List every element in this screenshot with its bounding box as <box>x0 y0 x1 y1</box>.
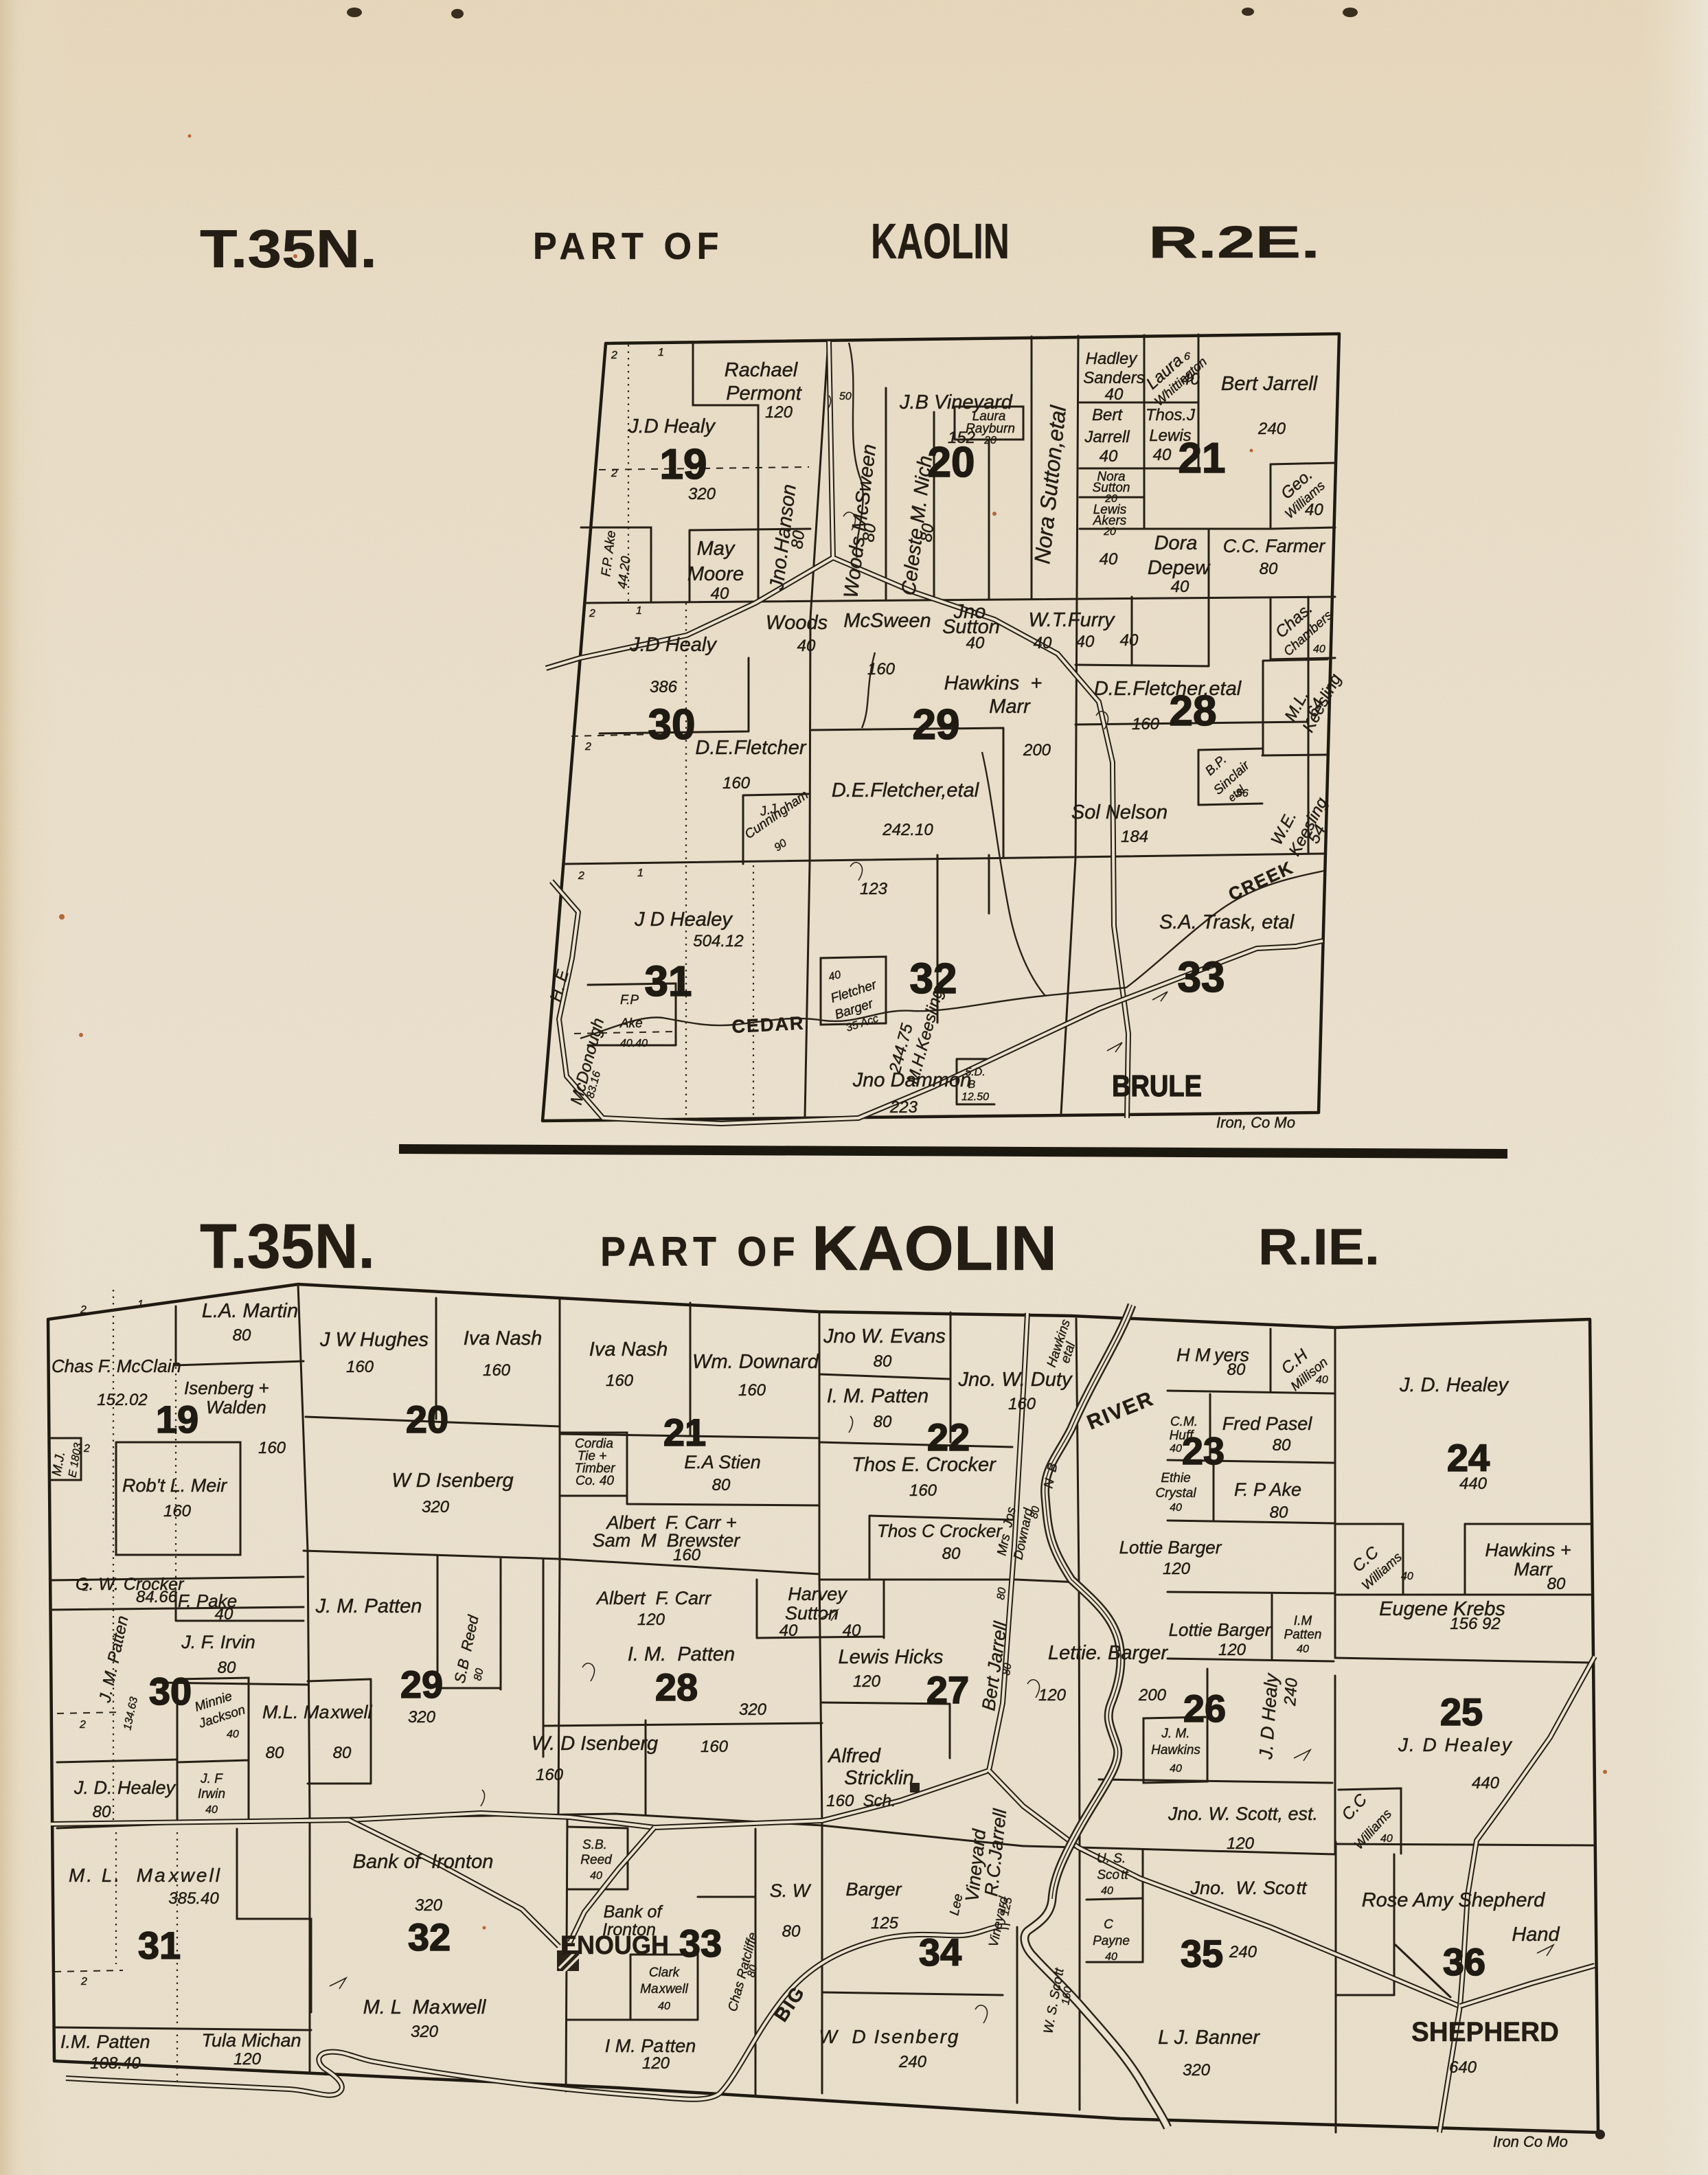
svg-text:320: 320 <box>1183 2061 1211 2080</box>
svg-text:19: 19 <box>660 441 707 488</box>
svg-text:Clark: Clark <box>649 1966 681 1980</box>
svg-text:M. L. Maxwell: M. L. Maxwell <box>69 1865 222 1886</box>
svg-text:40: 40 <box>1170 1763 1182 1775</box>
svg-text:Lewis Hicks: Lewis Hicks <box>838 1646 943 1668</box>
svg-text:40: 40 <box>1181 370 1200 389</box>
svg-text:Ake: Ake <box>619 1016 643 1031</box>
svg-text:KAOLIN: KAOLIN <box>871 214 1010 269</box>
svg-text:Barger: Barger <box>845 1879 902 1900</box>
svg-text:20: 20 <box>983 435 997 446</box>
svg-text:D.E.Fletcher,etal: D.E.Fletcher,etal <box>1094 678 1242 700</box>
svg-text:40: 40 <box>797 637 816 655</box>
svg-text:40: 40 <box>1305 501 1323 519</box>
svg-text:F. P Ake: F. P Ake <box>1234 1479 1301 1500</box>
svg-text:80: 80 <box>1028 1505 1042 1520</box>
svg-text:Patten: Patten <box>1284 1628 1322 1642</box>
svg-text:McSween: McSween <box>843 610 931 632</box>
svg-text:80: 80 <box>93 1803 111 1821</box>
svg-text:Marr: Marr <box>989 696 1031 718</box>
svg-text:320: 320 <box>411 2023 439 2041</box>
svg-text:Depew: Depew <box>1148 557 1211 579</box>
svg-text:May: May <box>697 538 736 560</box>
svg-text:S.A. Trask, etal: S.A. Trask, etal <box>1159 911 1295 933</box>
svg-text:120: 120 <box>1163 1560 1191 1578</box>
svg-text:2: 2 <box>80 1976 87 1988</box>
svg-text:Jno. W. Scott: Jno. W. Scott <box>1189 1878 1308 1898</box>
svg-text:80: 80 <box>1260 560 1278 578</box>
svg-text:20: 20 <box>1103 526 1116 538</box>
svg-text:40: 40 <box>1076 633 1095 651</box>
svg-text:160: 160 <box>1132 715 1160 733</box>
svg-text:W.T.Furry: W.T.Furry <box>1028 609 1115 631</box>
svg-text:2: 2 <box>79 1719 86 1731</box>
svg-text:27: 27 <box>926 1668 969 1711</box>
svg-text:40: 40 <box>1170 1443 1182 1455</box>
svg-text:320: 320 <box>688 485 716 503</box>
svg-text:J. D Healey: J. D Healey <box>1398 1734 1513 1755</box>
svg-text:240: 240 <box>1229 1943 1257 1961</box>
svg-text:Rob't L. Meir: Rob't L. Meir <box>122 1475 227 1496</box>
svg-text:20: 20 <box>406 1398 448 1441</box>
svg-text:S. W: S. W <box>770 1880 812 1901</box>
svg-text:120: 120 <box>853 1672 881 1691</box>
svg-text:22: 22 <box>927 1415 970 1459</box>
svg-text:W D Isenberg: W D Isenberg <box>819 2026 960 2047</box>
svg-text:J. F: J. F <box>200 1772 223 1786</box>
svg-text:21: 21 <box>663 1411 706 1454</box>
svg-text:J. M. Patten: J. M. Patten <box>315 1595 422 1617</box>
svg-text:Dora: Dora <box>1154 532 1198 554</box>
svg-text:40: 40 <box>1171 578 1189 596</box>
svg-text:Alfred: Alfred <box>827 1745 881 1767</box>
svg-text:Iva Nash: Iva Nash <box>589 1339 668 1360</box>
svg-text:D.E.Fletcher: D.E.Fletcher <box>695 737 806 759</box>
svg-text:CEDAR: CEDAR <box>731 1012 805 1037</box>
svg-text:PART OF: PART OF <box>600 1229 800 1275</box>
svg-text:320: 320 <box>415 1896 443 1915</box>
svg-text:33: 33 <box>679 1922 722 1965</box>
svg-text:S.B.: S.B. <box>582 1838 607 1852</box>
svg-text:Harvey: Harvey <box>788 1584 847 1604</box>
svg-text:Moore: Moore <box>687 563 744 585</box>
svg-text:40: 40 <box>1100 447 1118 466</box>
svg-text:24: 24 <box>1447 1436 1490 1479</box>
svg-text:240: 240 <box>1257 420 1286 438</box>
svg-text:25: 25 <box>1440 1690 1483 1733</box>
svg-text:386: 386 <box>650 678 678 696</box>
svg-text:U. S.: U. S. <box>1097 1852 1126 1866</box>
svg-text:6: 6 <box>1184 351 1190 363</box>
svg-text:32: 32 <box>408 1915 451 1959</box>
svg-text:34: 34 <box>919 1931 961 1974</box>
svg-text:L J. Banner: L J. Banner <box>1158 2027 1260 2049</box>
svg-text:I.M: I.M <box>1294 1614 1312 1628</box>
svg-text:80: 80 <box>874 1413 892 1431</box>
svg-text:40: 40 <box>590 1870 602 1882</box>
svg-text:Wm. Downard: Wm. Downard <box>692 1351 819 1373</box>
svg-text:40: 40 <box>1153 446 1172 464</box>
svg-text:Thos.J: Thos.J <box>1146 406 1196 424</box>
svg-text:Jarrell: Jarrell <box>1084 428 1130 446</box>
svg-text:Scott: Scott <box>1097 1868 1128 1882</box>
svg-text:504.12: 504.12 <box>693 932 743 950</box>
svg-text:242.10: 242.10 <box>882 821 933 839</box>
svg-text:80: 80 <box>1001 1662 1014 1676</box>
svg-text:156 92: 156 92 <box>1450 1615 1500 1633</box>
svg-text:30: 30 <box>149 1670 192 1713</box>
svg-text:31: 31 <box>138 1924 181 1967</box>
svg-text:Tula Michan: Tula Michan <box>201 2030 301 2051</box>
svg-text:40: 40 <box>843 1621 861 1640</box>
svg-text:PART OF: PART OF <box>533 225 724 267</box>
svg-text:Co. 40: Co. 40 <box>576 1474 614 1488</box>
svg-text:Bert Jarrell: Bert Jarrell <box>1221 373 1319 395</box>
svg-text:200: 200 <box>1138 1686 1167 1705</box>
svg-text:ENOUGH: ENOUGH <box>560 1931 669 1960</box>
svg-text:160: 160 <box>673 1546 701 1564</box>
svg-text:80: 80 <box>788 529 808 549</box>
svg-text:320: 320 <box>739 1700 767 1719</box>
svg-text:23: 23 <box>1182 1429 1225 1472</box>
svg-text:40: 40 <box>1101 1885 1113 1897</box>
svg-text:40: 40 <box>205 1804 218 1816</box>
svg-text:40: 40 <box>1105 385 1124 404</box>
svg-text:1: 1 <box>637 867 644 879</box>
svg-text:40: 40 <box>966 634 985 652</box>
svg-text:160: 160 <box>346 1358 374 1376</box>
svg-text:320: 320 <box>408 1708 436 1727</box>
svg-text:40: 40 <box>1105 1951 1117 1963</box>
svg-text:40: 40 <box>1380 1833 1393 1845</box>
svg-text:28: 28 <box>655 1665 698 1709</box>
svg-text:29: 29 <box>913 701 960 749</box>
svg-text:30: 30 <box>648 701 696 749</box>
svg-text:Sam M Brewster: Sam M Brewster <box>593 1530 741 1551</box>
svg-text:D.E.Fletcher,etal: D.E.Fletcher,etal <box>832 779 980 801</box>
svg-text:385.40: 385.40 <box>168 1889 219 1908</box>
svg-text:Lettie. Barger: Lettie. Barger <box>1048 1642 1168 1664</box>
svg-text:2: 2 <box>80 1304 87 1316</box>
svg-text:1: 1 <box>636 605 642 617</box>
svg-text:320: 320 <box>422 1498 450 1516</box>
svg-text:Lottie Barger: Lottie Barger <box>1119 1537 1222 1558</box>
svg-text:W D Isenberg: W D Isenberg <box>391 1470 513 1492</box>
svg-text:120: 120 <box>234 2050 262 2069</box>
svg-text:Hadley: Hadley <box>1086 350 1139 368</box>
svg-text:440: 440 <box>1472 1774 1500 1792</box>
svg-text:Permont: Permont <box>726 383 803 405</box>
svg-text:Stricklin: Stricklin <box>844 1767 914 1789</box>
svg-text:Walden: Walden <box>206 1397 266 1417</box>
svg-text:33: 33 <box>1178 954 1225 1001</box>
svg-text:160: 160 <box>701 1738 729 1756</box>
svg-text:123: 123 <box>860 880 888 898</box>
svg-text:80: 80 <box>1227 1360 1246 1379</box>
svg-text:1: 1 <box>658 347 664 358</box>
svg-text:T.35N.: T.35N. <box>200 218 377 279</box>
svg-text:120: 120 <box>1038 1686 1067 1705</box>
svg-text:Rose Amy Shepherd: Rose Amy Shepherd <box>1362 1889 1545 1911</box>
svg-text:160: 160 <box>909 1481 937 1500</box>
svg-text:J. D. Healey: J. D. Healey <box>1399 1374 1509 1396</box>
svg-text:2: 2 <box>611 468 617 479</box>
svg-text:160: 160 <box>722 774 751 793</box>
svg-text:160: 160 <box>606 1371 634 1390</box>
svg-text:J.D Healy: J.D Healy <box>628 415 716 437</box>
svg-text:Jno Dammon: Jno Dammon <box>852 1069 971 1091</box>
svg-text:80: 80 <box>1273 1436 1291 1455</box>
svg-text:2: 2 <box>584 741 591 753</box>
svg-text:80: 80 <box>859 522 880 543</box>
svg-text:120: 120 <box>637 1610 665 1629</box>
svg-text:Bert: Bert <box>1092 406 1123 424</box>
svg-text:184: 184 <box>1121 828 1148 846</box>
svg-text:Crystal: Crystal <box>1155 1486 1196 1501</box>
svg-text:Payne: Payne <box>1093 1934 1130 1948</box>
svg-text:M. L Maxwell: M. L Maxwell <box>363 1996 487 2018</box>
svg-text:Maxwell: Maxwell <box>640 1982 688 1996</box>
svg-text:Hawkins +: Hawkins + <box>1485 1540 1571 1560</box>
svg-text:J.D Healy: J.D Healy <box>629 634 717 656</box>
svg-text:80: 80 <box>1270 1503 1288 1522</box>
svg-text:Iron, Co Mo: Iron, Co Mo <box>1216 1114 1295 1131</box>
svg-text:40: 40 <box>1401 1571 1413 1582</box>
svg-text:R.IE.: R.IE. <box>1258 1218 1380 1275</box>
svg-text:J D Healey: J D Healey <box>634 909 733 931</box>
svg-text:Ethie: Ethie <box>1161 1471 1190 1485</box>
svg-text:29: 29 <box>400 1663 443 1706</box>
svg-text:152.02: 152.02 <box>97 1391 147 1409</box>
svg-text:40: 40 <box>779 1621 798 1640</box>
svg-text:40: 40 <box>1034 634 1052 652</box>
svg-text:440: 440 <box>1459 1474 1488 1493</box>
svg-text:Albert F. Carr: Albert F. Carr <box>595 1588 711 1608</box>
svg-text:223: 223 <box>889 1098 918 1117</box>
svg-text:Isenberg +: Isenberg + <box>184 1378 269 1398</box>
svg-text:Hand: Hand <box>1512 1924 1560 1946</box>
svg-text:160 Sch.: 160 Sch. <box>826 1792 896 1810</box>
svg-text:120: 120 <box>642 2054 670 2073</box>
svg-text:I M. Patten: I M. Patten <box>605 2036 696 2056</box>
svg-text:80: 80 <box>942 1545 961 1563</box>
svg-text:120: 120 <box>1218 1641 1246 1659</box>
svg-text:C: C <box>1104 1917 1113 1932</box>
svg-text:80: 80 <box>712 1476 731 1494</box>
svg-text:36: 36 <box>1443 1940 1485 1983</box>
svg-text:12.50: 12.50 <box>961 1091 989 1103</box>
svg-text:Rayburn: Rayburn <box>966 422 1015 436</box>
svg-text:40: 40 <box>1120 631 1139 650</box>
svg-text:T.35N.: T.35N. <box>200 1211 375 1282</box>
svg-text:2: 2 <box>611 350 617 361</box>
svg-text:2: 2 <box>578 870 584 882</box>
svg-text:J. D. Healey: J. D. Healey <box>73 1777 177 1798</box>
svg-text:B: B <box>968 1079 976 1091</box>
svg-text:120: 120 <box>1227 1834 1255 1853</box>
svg-text:160: 160 <box>867 660 896 679</box>
svg-text:80: 80 <box>333 1744 352 1762</box>
svg-text:I.M. Patten: I.M. Patten <box>60 2031 150 2052</box>
svg-text:R.2E.: R.2E. <box>1148 216 1320 267</box>
svg-text:Rachael: Rachael <box>725 359 799 381</box>
svg-text:40: 40 <box>1170 1502 1182 1514</box>
svg-text:40: 40 <box>1316 1374 1328 1386</box>
svg-text:I. M. Patten: I. M. Patten <box>628 1643 735 1665</box>
svg-text:160: 160 <box>483 1361 511 1380</box>
svg-text:56: 56 <box>1236 788 1249 799</box>
svg-text:Woods: Woods <box>766 612 828 634</box>
svg-text:31: 31 <box>645 958 692 1005</box>
svg-text:Hawkins: Hawkins <box>1151 1743 1200 1757</box>
svg-text:E.A Stien: E.A Stien <box>684 1452 761 1472</box>
svg-text:80: 80 <box>874 1352 892 1371</box>
svg-text:2: 2 <box>589 608 595 619</box>
svg-text:BRULE: BRULE <box>1112 1069 1202 1103</box>
svg-text:160: 160 <box>163 1502 192 1521</box>
svg-text:200: 200 <box>1023 741 1051 760</box>
svg-text:160: 160 <box>536 1766 564 1784</box>
svg-text:Chas F. McClain: Chas F. McClain <box>52 1356 181 1376</box>
svg-text:40: 40 <box>1100 550 1118 569</box>
svg-text:40: 40 <box>1313 644 1325 655</box>
svg-text:Sol Nelson: Sol Nelson <box>1071 801 1168 823</box>
svg-text:80: 80 <box>917 522 937 543</box>
svg-text:Reed: Reed <box>580 1853 613 1867</box>
svg-text:120: 120 <box>765 403 793 422</box>
svg-text:Jno. W. Duty: Jno. W. Duty <box>958 1369 1073 1391</box>
svg-text:Bank of Ironton: Bank of Ironton <box>353 1851 494 1873</box>
svg-text:80: 80 <box>472 1667 486 1682</box>
svg-text:40: 40 <box>711 584 729 603</box>
svg-text:125: 125 <box>871 1914 899 1933</box>
svg-text:KAOLIN: KAOLIN <box>812 1214 1057 1284</box>
svg-text:80: 80 <box>1547 1575 1566 1593</box>
svg-text:Bank of: Bank of <box>604 1902 664 1922</box>
svg-text:40.40: 40.40 <box>620 1038 648 1049</box>
svg-text:Jno W. Evans: Jno W. Evans <box>823 1325 946 1347</box>
svg-text:Fred Pasel: Fred Pasel <box>1222 1413 1313 1434</box>
svg-text:SHEPHERD: SHEPHERD <box>1411 2017 1559 2047</box>
svg-text:160: 160 <box>1008 1395 1036 1413</box>
svg-text:80: 80 <box>266 1744 284 1762</box>
svg-text:Lottie Barger: Lottie Barger <box>1169 1619 1272 1640</box>
svg-text:35: 35 <box>1181 1932 1223 1975</box>
svg-text:J. F. Irvin: J. F. Irvin <box>181 1632 255 1652</box>
svg-text:80: 80 <box>218 1659 236 1677</box>
svg-text:Hawkins +: Hawkins + <box>944 672 1043 694</box>
svg-text:40: 40 <box>1297 1643 1309 1655</box>
svg-text:21: 21 <box>1178 435 1226 482</box>
svg-text:84.66: 84.66 <box>136 1588 178 1606</box>
svg-text:640: 640 <box>1449 2058 1477 2077</box>
svg-text:C.M.: C.M. <box>1170 1415 1198 1429</box>
svg-text:240: 240 <box>1281 1677 1301 1707</box>
svg-text:2: 2 <box>82 1582 89 1593</box>
svg-text:Thos C Crocker: Thos C Crocker <box>877 1521 1003 1541</box>
svg-text:108.40: 108.40 <box>90 2054 141 2073</box>
svg-text:W. D Isenberg: W. D Isenberg <box>532 1733 658 1755</box>
svg-text:40: 40 <box>227 1729 239 1740</box>
svg-text:5.D.: 5.D. <box>965 1067 985 1078</box>
svg-text:I. M. Patten: I. M. Patten <box>827 1385 929 1407</box>
svg-text:Thos E. Crocker: Thos E. Crocker <box>852 1454 997 1476</box>
svg-text:19: 19 <box>156 1398 198 1441</box>
svg-text:Irwin: Irwin <box>198 1787 225 1801</box>
svg-text:L.A. Martin: L.A. Martin <box>202 1300 298 1322</box>
svg-text:160: 160 <box>258 1439 286 1457</box>
svg-text:80: 80 <box>233 1326 251 1345</box>
svg-text:240: 240 <box>898 2053 927 2071</box>
svg-text:26: 26 <box>1183 1687 1226 1730</box>
svg-text:Iva Nash: Iva Nash <box>464 1328 542 1350</box>
svg-text:C.C. Farmer: C.C. Farmer <box>1223 536 1326 556</box>
svg-text:Jno. W. Scott, est.: Jno. W. Scott, est. <box>1168 1803 1318 1824</box>
svg-text:40: 40 <box>215 1605 234 1624</box>
svg-text:28: 28 <box>1170 687 1217 735</box>
svg-text:80: 80 <box>782 1922 801 1941</box>
svg-text:1: 1 <box>137 1299 144 1310</box>
svg-text:Sanders: Sanders <box>1083 369 1144 387</box>
svg-text:80: 80 <box>995 1586 1008 1600</box>
svg-text:Iron Co Mo: Iron Co Mo <box>1493 2133 1568 2150</box>
svg-text:F.P: F.P <box>620 993 639 1007</box>
svg-text:40: 40 <box>658 2001 670 2012</box>
svg-text:J W Hughes: J W Hughes <box>319 1329 429 1351</box>
svg-text:50: 50 <box>839 391 852 402</box>
svg-text:160: 160 <box>738 1381 766 1400</box>
svg-text:M.L. Maxwell: M.L. Maxwell <box>262 1702 373 1722</box>
